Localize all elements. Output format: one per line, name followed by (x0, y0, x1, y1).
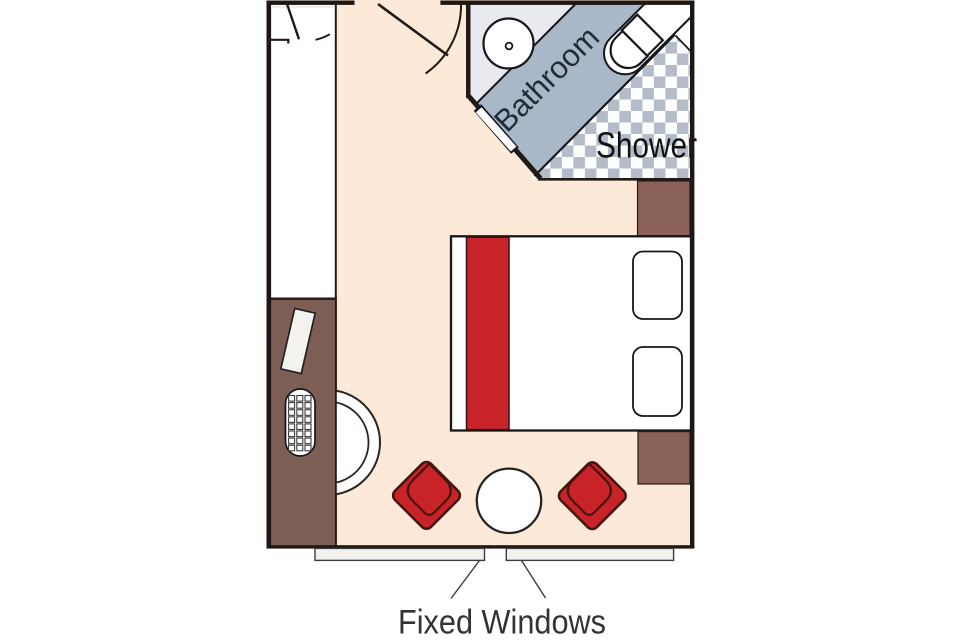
svg-text:Fixed Windows: Fixed Windows (398, 603, 606, 640)
svg-text:Shower: Shower (596, 124, 697, 165)
